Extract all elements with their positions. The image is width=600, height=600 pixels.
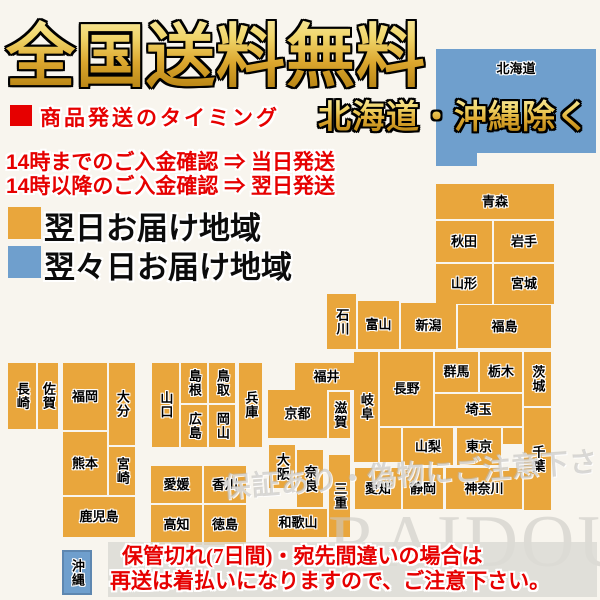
map-region-yamagata: 山形 bbox=[436, 264, 492, 304]
map-region-okinawa: 沖縄 bbox=[62, 550, 92, 595]
region-label-hyogo: 兵庫 bbox=[244, 391, 258, 419]
map-region-toyama: 富山 bbox=[358, 301, 399, 349]
shipping-rule-after-14: 14時以降のご入金確認 ⇒ 翌日発送 bbox=[6, 170, 335, 200]
map-region-nagano: 長野 bbox=[380, 352, 433, 426]
map-region-tochigi: 栃木 bbox=[480, 352, 522, 392]
map-region-ibaraki: 茨城 bbox=[524, 352, 551, 406]
region-label-kochi: 高知 bbox=[163, 518, 189, 532]
region-label-hiroshima: 広島 bbox=[187, 412, 201, 440]
map-region-tokyo-bay-north bbox=[503, 428, 522, 444]
map-region-kyoto: 京都 bbox=[268, 390, 327, 438]
region-label-shimane: 島根 bbox=[187, 369, 201, 397]
region-label-ibaraki: 茨城 bbox=[531, 365, 545, 393]
region-label-akita: 秋田 bbox=[451, 235, 477, 249]
map-region-fukui: 福井 bbox=[295, 363, 358, 390]
region-label-okayama: 岡山 bbox=[215, 412, 229, 440]
region-label-iwate: 岩手 bbox=[511, 235, 537, 249]
map-region-wakayama: 和歌山 bbox=[269, 509, 327, 537]
map-region-yamaguchi: 山口 bbox=[152, 363, 179, 447]
region-label-fukuoka: 福岡 bbox=[72, 390, 98, 404]
region-label-shiga: 滋賀 bbox=[333, 401, 347, 429]
map-region-tokushima: 徳島 bbox=[204, 505, 246, 545]
map-region-okayama: 岡山 bbox=[209, 405, 235, 447]
region-label-niigata: 新潟 bbox=[415, 319, 441, 333]
region-label-ehime: 愛媛 bbox=[163, 478, 189, 492]
region-label-nagasaki: 長崎 bbox=[15, 382, 29, 410]
map-region-gunma: 群馬 bbox=[435, 352, 478, 392]
region-label-saitama: 埼玉 bbox=[465, 403, 491, 417]
region-label-yamaguchi: 山口 bbox=[159, 391, 173, 419]
region-label-tottori: 鳥取 bbox=[215, 369, 229, 397]
free-shipping-banner: 全国送料無料 北海道・沖縄除く 商品発送のタイミング 14時までのご入金確認 ⇒… bbox=[0, 0, 600, 600]
map-region-iwate: 岩手 bbox=[494, 221, 554, 262]
shipping-timing-heading: 商品発送のタイミング bbox=[40, 102, 280, 132]
legend-swatch-two-day bbox=[8, 246, 41, 278]
region-label-tochigi: 栃木 bbox=[488, 365, 514, 379]
region-label-toyama: 富山 bbox=[365, 318, 391, 332]
region-label-saga: 佐賀 bbox=[41, 382, 55, 410]
region-label-nagano: 長野 bbox=[393, 382, 419, 396]
exclusion-note: 北海道・沖縄除く bbox=[318, 90, 590, 138]
map-region-ehime: 愛媛 bbox=[151, 466, 202, 503]
notice-line-1: 保管切れ(7日間)・宛先間違いの場合は bbox=[122, 544, 550, 569]
map-region-hokkaido-tail bbox=[436, 153, 477, 166]
map-region-miyazaki: 宮崎 bbox=[109, 447, 135, 495]
map-region-saga: 佐賀 bbox=[38, 363, 58, 429]
map-region-kumamoto: 熊本 bbox=[63, 432, 107, 495]
map-region-aomori: 青森 bbox=[436, 184, 554, 219]
storage-notice: 保管切れ(7日間)・宛先間違いの場合は 再送は着払いになりますので、ご注意下さい… bbox=[122, 544, 550, 594]
region-label-okinawa: 沖縄 bbox=[70, 559, 84, 587]
region-label-miyazaki: 宮崎 bbox=[115, 457, 129, 485]
region-label-kagoshima: 鹿児島 bbox=[79, 510, 118, 524]
region-label-gunma: 群馬 bbox=[443, 365, 469, 379]
region-label-kyoto: 京都 bbox=[284, 407, 310, 421]
map-region-nagasaki: 長崎 bbox=[8, 363, 36, 429]
map-region-saitama: 埼玉 bbox=[435, 394, 522, 426]
map-region-shimane: 島根 bbox=[181, 363, 207, 403]
region-label-gifu: 岐阜 bbox=[359, 393, 373, 421]
region-label-miyagi: 宮城 bbox=[511, 277, 537, 291]
notice-line-2: 再送は着払いになりますので、ご注意下さい。 bbox=[110, 569, 550, 594]
map-region-oita: 大分 bbox=[109, 363, 135, 445]
map-region-miyagi: 宮城 bbox=[494, 264, 554, 304]
map-region-shiga: 滋賀 bbox=[329, 392, 350, 438]
region-label-oita: 大分 bbox=[115, 390, 129, 418]
map-region-hyogo: 兵庫 bbox=[239, 363, 262, 447]
region-label-yamagata: 山形 bbox=[451, 277, 477, 291]
region-label-wakayama: 和歌山 bbox=[278, 516, 317, 530]
map-region-fukushima: 福島 bbox=[458, 305, 551, 348]
map-region-kagoshima: 鹿児島 bbox=[63, 497, 135, 537]
page-title: 全国送料無料 bbox=[6, 0, 426, 100]
red-bullet-square bbox=[10, 105, 32, 126]
map-region-kochi: 高知 bbox=[151, 505, 202, 545]
map-region-ishikawa: 石川 bbox=[327, 294, 356, 349]
region-label-fukushima: 福島 bbox=[491, 320, 517, 334]
region-label-kumamoto: 熊本 bbox=[72, 457, 98, 471]
region-label-fukui: 福井 bbox=[313, 370, 339, 384]
map-region-akita: 秋田 bbox=[436, 221, 492, 262]
legend-swatch-next-day bbox=[8, 207, 41, 239]
region-label-ishikawa: 石川 bbox=[335, 308, 349, 336]
region-label-hokkaido: 北海道 bbox=[496, 49, 535, 76]
map-region-fukuoka: 福岡 bbox=[63, 363, 107, 430]
map-region-niigata: 新潟 bbox=[401, 303, 456, 349]
legend-label-two-day: 翌々日お届け地域 bbox=[44, 242, 292, 287]
region-label-tokushima: 徳島 bbox=[212, 518, 238, 532]
map-region-tottori: 鳥取 bbox=[209, 363, 235, 403]
region-label-aomori: 青森 bbox=[482, 195, 508, 209]
map-region-hiroshima: 広島 bbox=[181, 405, 207, 447]
